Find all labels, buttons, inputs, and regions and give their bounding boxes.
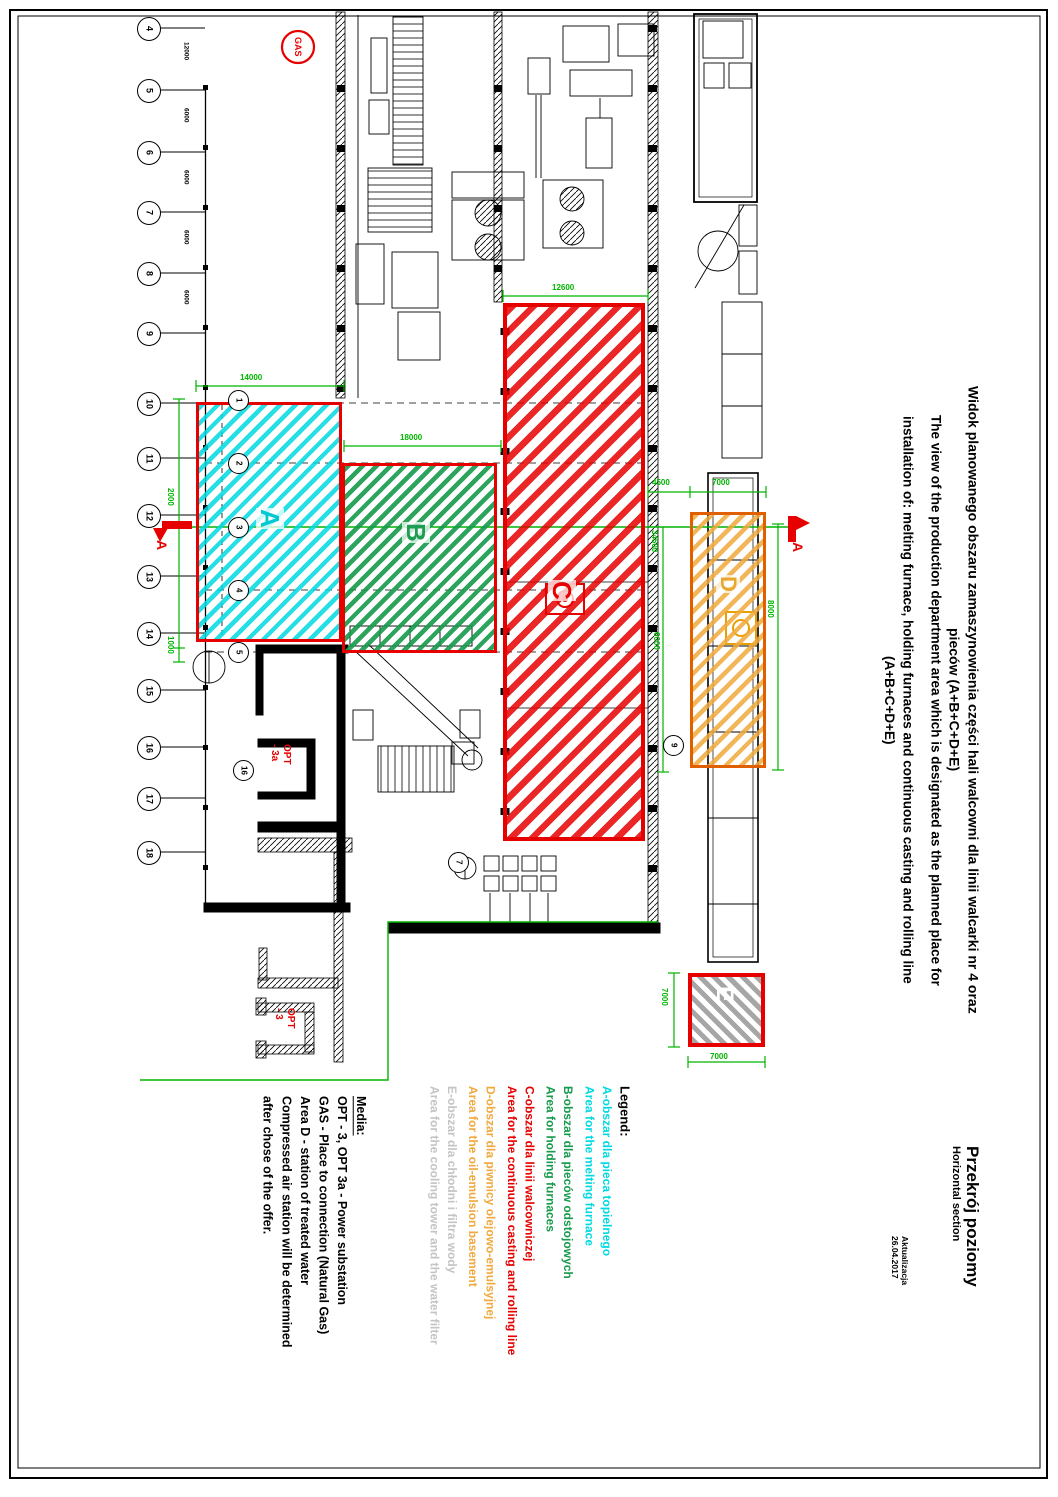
legend-e-pl: E-obszar dla chłodni i filtra wody (444, 1086, 458, 1476)
grid-bubble-label: 5 (145, 88, 154, 93)
section-marker-a-right: A (790, 542, 806, 552)
area-c-rolling-line (503, 303, 645, 841)
grid-bubble-16: 16 (137, 736, 161, 760)
area-d-oil-emulsion-basement (690, 512, 766, 768)
grid-bubble-14: 14 (137, 622, 161, 646)
grid-bubble-label: 10 (145, 399, 154, 409)
legend-b-pl: B-obszar dla pieców odstojowych (561, 1086, 575, 1476)
inner-bubble-4: 4 (228, 580, 249, 601)
opt-3-line2: - 3 (272, 1008, 284, 1029)
grid-bubble-18: 18 (137, 841, 161, 865)
grid-bubble-9: 9 (137, 322, 161, 346)
grid-bubble-label: 15 (145, 686, 154, 696)
opt-3-line1: OPT (284, 1008, 296, 1029)
dim-e-width: 7000 (710, 1053, 728, 1061)
axis-dim: 6000 (182, 108, 189, 122)
grid-bubble-17: 17 (137, 787, 161, 811)
inner-bubble-3: 3 (228, 517, 249, 538)
area-b-label: B (402, 522, 430, 543)
legend-entry-a: A-obszar dla pieca topielnego Area for t… (582, 1086, 614, 1476)
grid-bubble-label: 16 (145, 743, 154, 753)
grid-bubble-label: 17 (145, 794, 154, 804)
legend-entry-b: B-obszar dla pieców odstojowych Area for… (543, 1086, 575, 1476)
media-line-5: after chose of the offer. (259, 1096, 275, 1486)
inner-bubble-2: 2 (228, 453, 249, 474)
opt-3a-line1: OPT (280, 744, 292, 765)
media-line-4: Compressed air station will be determine… (278, 1096, 294, 1486)
area-b-holding-furnaces (342, 463, 497, 653)
legend-entry-d: D-obszar dla piwnicy olejowo-emulsyjnej … (466, 1086, 498, 1476)
inner-bubble-1: 1 (228, 390, 249, 411)
extra-bubble-16: 16 (233, 760, 254, 781)
grid-bubble-label: 13 (145, 572, 154, 582)
grid-bubble-label: 16 (240, 766, 248, 775)
section-marker-a-left: A (154, 540, 170, 550)
opt-3a-line2: - 3a (268, 744, 280, 765)
legend-c-en: Area for the continuous casting and roll… (505, 1086, 519, 1476)
media-line-1: OPT - 3, OPT 3a - Power substation (334, 1096, 350, 1486)
media-line-2: GAS - Place to connection (Natural Gas) (315, 1096, 331, 1486)
dim-e-height: 7000 (660, 988, 668, 1006)
grid-bubble-label: 8 (145, 271, 154, 276)
section-title-pl: Przekrój poziomy (962, 1146, 982, 1287)
section-title-block: Przekrój poziomy Horizontal section (950, 1146, 982, 1287)
grid-bubble-label: 18 (145, 848, 154, 858)
grid-bubble-label: 7 (145, 210, 154, 215)
grid-bubble-4: 4 (137, 17, 161, 41)
legend: Legend: A-obszar dla pieca topielnego Ar… (420, 1086, 633, 1476)
grid-bubble-label: 6 (145, 150, 154, 155)
area-e-label: E (712, 986, 736, 1002)
grid-bubble-label: 11 (145, 454, 154, 464)
legend-entry-e: E-obszar dla chłodni i filtra wody Area … (427, 1086, 459, 1476)
title-block: Widok planowanego obszaru zamaszynowieni… (880, 270, 982, 1130)
inner-bubble-5: 5 (228, 642, 249, 663)
title-en-line2: installation of: melting furnace, holdin… (898, 270, 916, 1130)
area-e-cooling-tower (688, 973, 765, 1047)
area-c-label: C (548, 580, 576, 601)
grid-bubble-15: 15 (137, 679, 161, 703)
grid-bubble-label: 9 (670, 743, 678, 747)
grid-bubble-label: 3 (235, 525, 243, 529)
axis-dim: 6000 (182, 230, 189, 244)
dim-c-width: 12600 (552, 284, 574, 292)
legend-c-pl: C-obszar dla linii walcowniczej (522, 1086, 536, 1476)
grid-bubble-label: 14 (145, 629, 154, 639)
area-a-label: A (256, 508, 284, 529)
section-title-en: Horizontal section (950, 1146, 962, 1287)
grid-bubble-12: 12 (137, 504, 161, 528)
dim-cd-height: 6000 (652, 632, 660, 650)
dim-a-gap: 1000 (166, 636, 174, 654)
legend-e-en: Area for the cooling tower and the water… (427, 1086, 441, 1476)
update-label: Aktualizacja (900, 1236, 910, 1285)
legend-a-pl: A-obszar dla pieca topielnego (600, 1086, 614, 1476)
grid-bubble-label: 12 (145, 511, 154, 521)
axis-dim: 6000 (182, 290, 189, 304)
legend-heading: Legend: (617, 1086, 633, 1476)
title-en-line1: The view of the production department ar… (926, 270, 944, 1130)
update-date: 26.04.2017 (890, 1236, 900, 1285)
opt-3a-substation-label: OPT - 3a (268, 744, 292, 765)
grid-bubble-7: 7 (137, 201, 161, 225)
gas-connection-marker: GAS (288, 31, 308, 63)
grid-bubble-5: 5 (137, 79, 161, 103)
legend-b-en: Area for holding furnaces (543, 1086, 557, 1476)
title-en-line3: (A+B+C+D+E) (880, 270, 898, 1130)
grid-bubble-11: 11 (137, 447, 161, 471)
dim-d-width: 7000 (712, 479, 730, 487)
grid-bubble-8: 8 (137, 262, 161, 286)
legend-entry-c: C-obszar dla linii walcowniczej Area for… (505, 1086, 537, 1476)
dim-cd-gap: 4500 (652, 479, 670, 487)
grid-bubble-label: 9 (145, 331, 154, 336)
grid-bubble-13: 13 (137, 565, 161, 589)
dim-b-width: 18000 (400, 434, 422, 442)
dim-a-width: 14000 (240, 374, 262, 382)
media-line-3: Area D - station of treated water (296, 1096, 312, 1486)
legend-a-en: Area for the melting furnace (582, 1086, 596, 1476)
axis-dim: 6000 (182, 170, 189, 184)
grid-bubble-label: 4 (235, 588, 243, 592)
area-d-label: D (716, 575, 740, 593)
grid-bubble-label: 7 (455, 860, 463, 864)
opt-3-substation-label: OPT - 3 (272, 1008, 296, 1029)
media-heading: Media: (352, 1096, 368, 1486)
dim-d-height: 8000 (766, 600, 774, 618)
dim-a-offset: 2000 (166, 488, 174, 506)
grid-bubble-6: 6 (137, 141, 161, 165)
drawing-sheet: A B C D E 4 5 6 7 8 9 10 11 12 13 14 15 … (0, 0, 1058, 1497)
extra-bubble-7: 7 (448, 852, 469, 873)
media-notes: Media: OPT - 3, OPT 3a - Power substatio… (256, 1096, 368, 1486)
legend-d-en: Area for the oil-emulsion basement (466, 1086, 480, 1476)
extra-bubble-9: 9 (663, 735, 684, 756)
title-pl-line2: pieców (A+B+C+D+E) (945, 270, 964, 1130)
axis-dim: 12000 (182, 42, 189, 60)
title-pl-line1: Widok planowanego obszaru zamaszynowieni… (964, 270, 983, 1130)
grid-bubble-label: 5 (235, 650, 243, 654)
dim-c-height: 34500 (650, 530, 658, 552)
update-block: Aktualizacja 26.04.2017 (890, 1236, 910, 1285)
grid-bubble-10: 10 (137, 392, 161, 416)
legend-d-pl: D-obszar dla piwnicy olejowo-emulsyjnej (483, 1086, 497, 1476)
grid-bubble-label: 1 (235, 398, 243, 402)
grid-bubble-label: 4 (145, 26, 154, 31)
grid-bubble-label: 2 (235, 461, 243, 465)
